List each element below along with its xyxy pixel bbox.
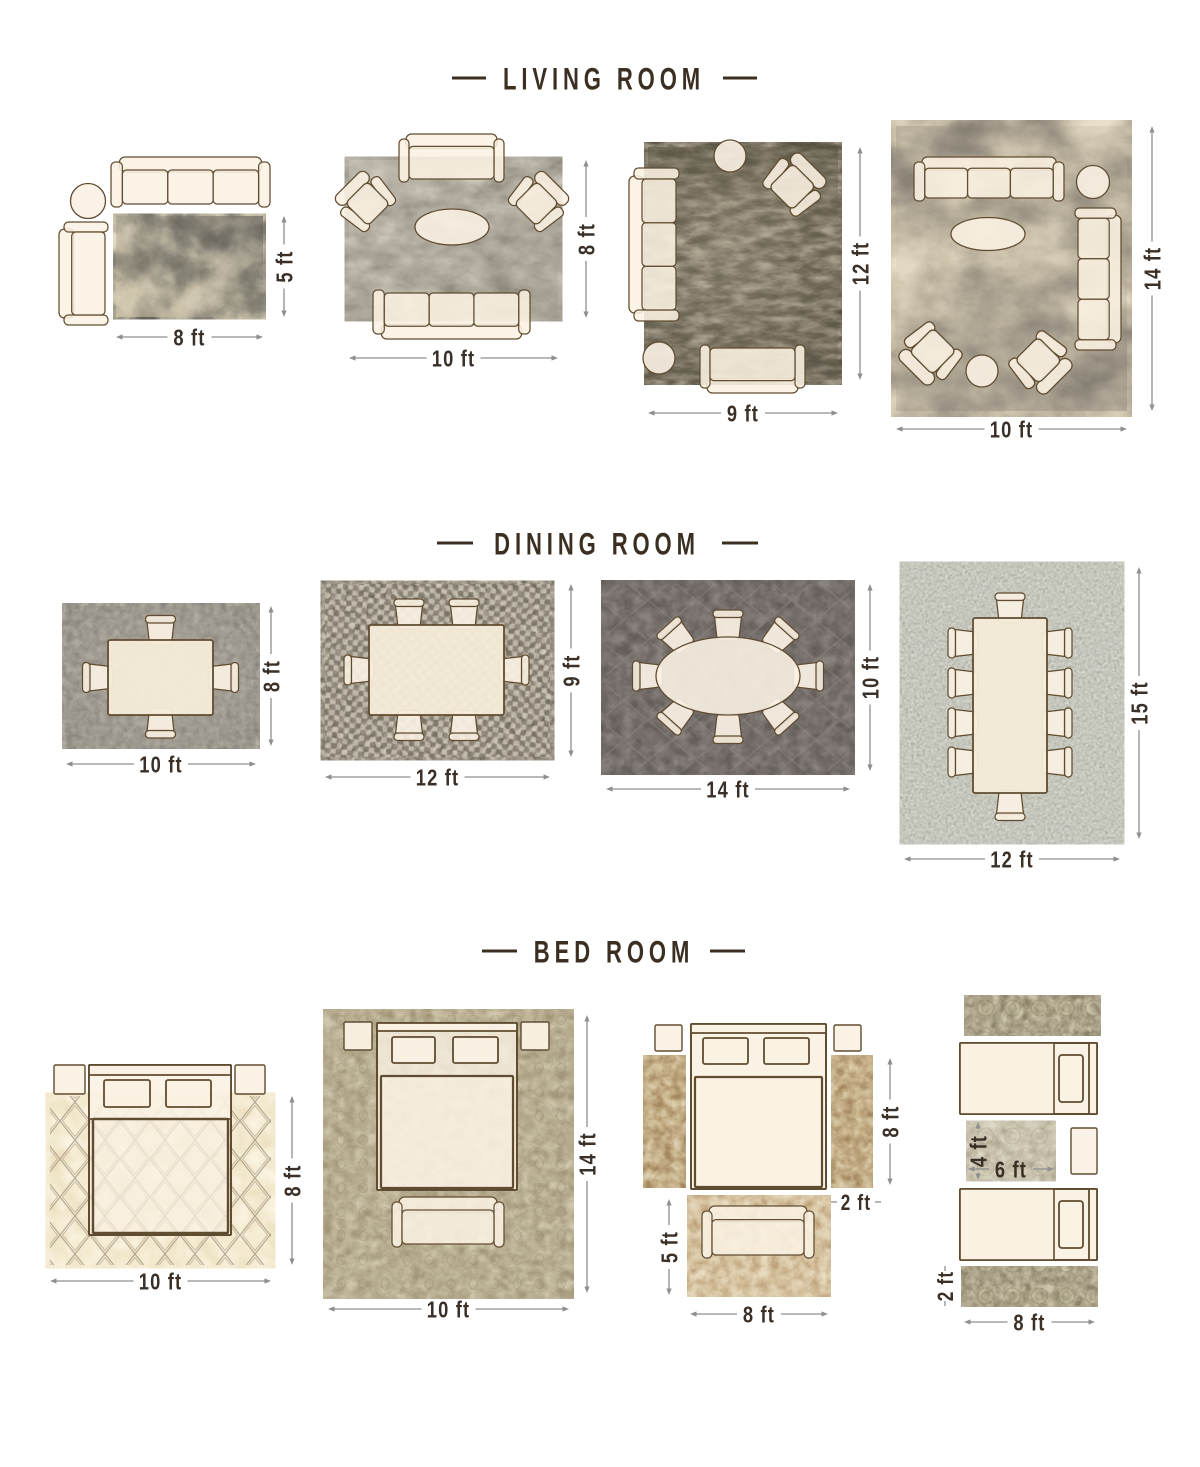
- svg-text:10 ft: 10 ft: [139, 1269, 183, 1295]
- svg-text:5 ft: 5 ft: [272, 250, 298, 282]
- svg-text:6 ft: 6 ft: [995, 1157, 1027, 1183]
- svg-text:8 ft: 8 ft: [280, 1164, 306, 1196]
- svg-text:LIVING ROOM: LIVING ROOM: [503, 61, 705, 97]
- svg-text:8 ft: 8 ft: [173, 325, 205, 351]
- svg-text:15 ft: 15 ft: [1127, 681, 1153, 725]
- svg-text:9 ft: 9 ft: [559, 654, 585, 686]
- svg-text:5 ft: 5 ft: [657, 1231, 683, 1263]
- svg-text:8 ft: 8 ft: [743, 1302, 775, 1328]
- svg-text:8 ft: 8 ft: [259, 660, 285, 692]
- svg-text:2 ft: 2 ft: [934, 1271, 959, 1301]
- svg-text:12 ft: 12 ft: [416, 765, 460, 791]
- svg-text:BED ROOM: BED ROOM: [534, 934, 694, 970]
- svg-text:8 ft: 8 ft: [574, 223, 600, 255]
- svg-text:4 ft: 4 ft: [966, 1135, 992, 1167]
- svg-text:10 ft: 10 ft: [427, 1297, 471, 1323]
- svg-text:8 ft: 8 ft: [878, 1105, 904, 1137]
- svg-text:10 ft: 10 ft: [139, 752, 183, 778]
- svg-text:12 ft: 12 ft: [848, 242, 874, 286]
- svg-text:DINING ROOM: DINING ROOM: [494, 526, 700, 562]
- svg-text:14 ft: 14 ft: [575, 1132, 601, 1176]
- svg-text:12 ft: 12 ft: [990, 847, 1034, 873]
- svg-text:10 ft: 10 ft: [858, 656, 884, 700]
- svg-text:10 ft: 10 ft: [990, 417, 1034, 443]
- svg-text:2 ft: 2 ft: [841, 1191, 871, 1216]
- svg-text:14 ft: 14 ft: [1140, 247, 1166, 291]
- svg-text:14 ft: 14 ft: [706, 777, 750, 803]
- svg-text:10 ft: 10 ft: [432, 346, 476, 372]
- svg-text:9 ft: 9 ft: [727, 401, 759, 427]
- svg-text:8 ft: 8 ft: [1013, 1310, 1045, 1336]
